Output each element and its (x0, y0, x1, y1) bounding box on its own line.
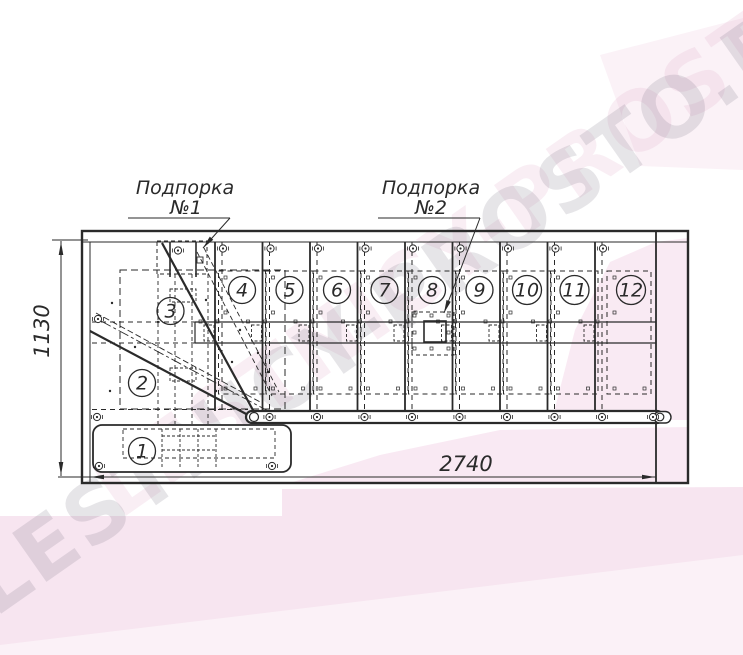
step-number-11: 11 (562, 280, 586, 302)
step-number-12: 12 (619, 280, 643, 302)
step-number-3: 3 (164, 301, 176, 323)
rivet-dot (231, 361, 233, 363)
height-dimension-value: 1130 (30, 304, 54, 357)
rivet-dot (134, 346, 136, 348)
step-number-10: 10 (515, 280, 539, 302)
step-number-6: 6 (331, 280, 343, 302)
support-2-title: Подпорка (382, 177, 480, 199)
staircase-plan-drawing: LESTNICY-PROSTO.RU LESTNICY-PROSTO.RU (0, 0, 743, 655)
step-number-2: 2 (136, 373, 148, 395)
step-number-7: 7 (378, 280, 390, 302)
support-2-number: №2 (414, 197, 447, 219)
step-number-5: 5 (283, 280, 295, 302)
base-plate (93, 425, 291, 472)
support-1-number: №1 (169, 197, 202, 219)
step-number-8: 8 (426, 280, 438, 302)
rivet-dot (215, 390, 217, 392)
rivet-dot (239, 329, 241, 331)
rivet-dot (109, 390, 111, 392)
rivet-dot (257, 352, 259, 354)
length-dimension-value: 2740 (439, 452, 492, 476)
step-number-9: 9 (473, 280, 485, 302)
rivet-dot (205, 299, 207, 301)
step-number-1: 1 (136, 441, 148, 463)
staircase-plan-page: LESTNICY-PROSTO.RU LESTNICY-PROSTO.RU (0, 0, 743, 655)
rivet-dot (111, 302, 113, 304)
support-1-title: Подпорка (136, 177, 234, 199)
step-number-4: 4 (236, 280, 248, 302)
